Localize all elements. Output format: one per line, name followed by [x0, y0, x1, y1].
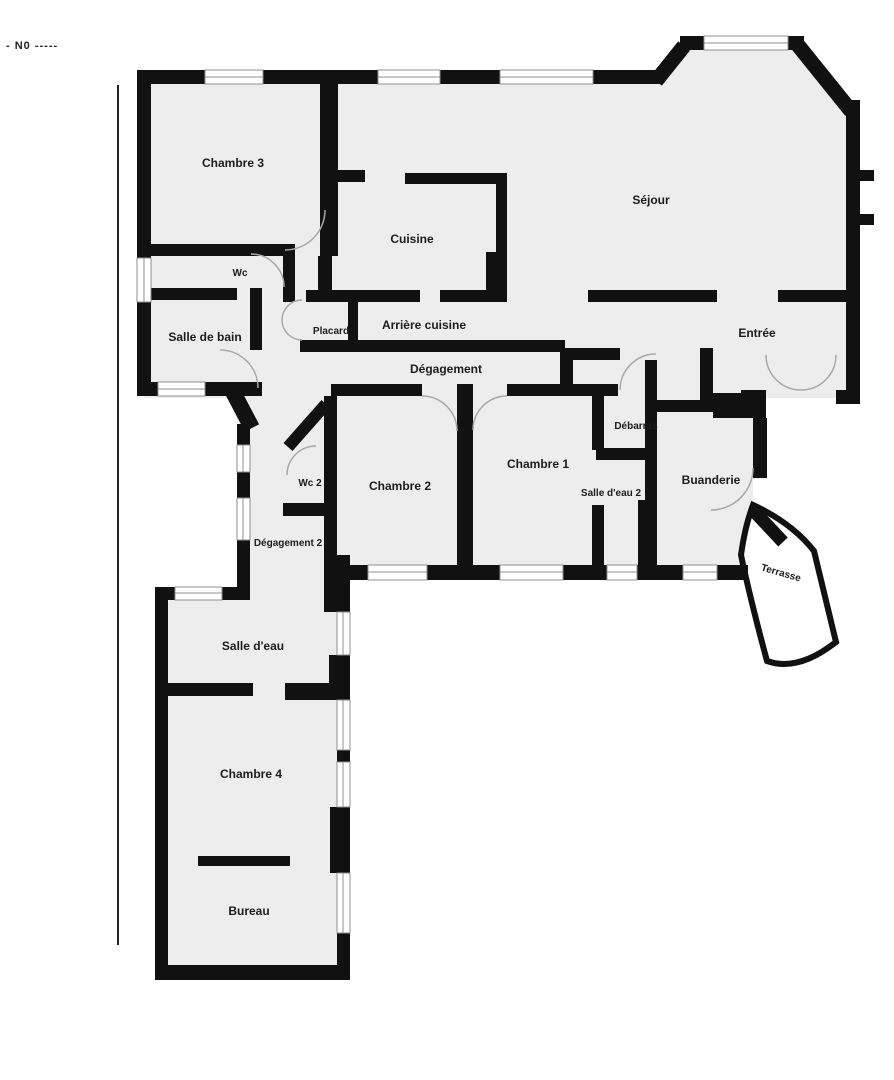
- window: [378, 70, 440, 84]
- wall-segment: [563, 565, 607, 580]
- wall-segment: [657, 400, 713, 412]
- window: [500, 70, 593, 84]
- wall-segment: [285, 683, 337, 700]
- wall-segment: [137, 70, 151, 396]
- wall-segment: [337, 933, 350, 980]
- wall-segment: [560, 348, 620, 360]
- wall-segment: [846, 214, 874, 225]
- wall-segment: [331, 384, 422, 396]
- room-label-entree: Entrée: [738, 326, 776, 340]
- window: [368, 565, 427, 580]
- window: [683, 565, 717, 580]
- room-label-arriere-cuisine: Arrière cuisine: [382, 318, 466, 332]
- wall-segment: [846, 100, 860, 396]
- wall-segment: [137, 382, 158, 396]
- window: [337, 700, 350, 750]
- window: [205, 70, 263, 84]
- wall-segment: [250, 288, 262, 350]
- window: [237, 445, 250, 472]
- wall-segment: [592, 384, 604, 450]
- room-label-sejour: Séjour: [632, 193, 670, 207]
- floorplan-svg: - N0 ----- Chambre 3 Wc Salle de bain Cu…: [0, 0, 894, 1080]
- room-label-wc-2: Wc 2: [298, 478, 322, 489]
- wall-segment: [338, 170, 365, 182]
- room-label-degagement-2: Dégagement 2: [254, 538, 323, 549]
- wall-segment: [846, 170, 874, 181]
- wall-segment: [237, 540, 250, 590]
- wall-segment: [713, 393, 766, 418]
- room-label-chambre-4: Chambre 4: [220, 767, 282, 781]
- room-label-salle-de-bain: Salle de bain: [168, 330, 241, 344]
- wall-segment: [427, 565, 500, 580]
- wall-segment: [263, 70, 378, 84]
- wall-segment: [592, 505, 604, 565]
- wall-segment: [638, 500, 657, 565]
- wall-segment: [155, 587, 175, 600]
- wall-segment: [283, 503, 337, 516]
- window: [337, 612, 350, 655]
- wall-segment: [588, 290, 717, 302]
- wall-segment: [405, 173, 507, 184]
- room-label-bureau: Bureau: [228, 904, 269, 918]
- room-label-chambre-2: Chambre 2: [369, 479, 431, 493]
- wall-segment: [151, 288, 237, 300]
- wall-segment: [306, 290, 355, 302]
- wall-segment: [348, 296, 358, 344]
- room-label-salle-d-eau: Salle d'eau: [222, 639, 284, 653]
- window: [337, 873, 350, 933]
- room-label-chambre-1: Chambre 1: [507, 457, 569, 471]
- wall-segment: [836, 390, 860, 404]
- wall-segment: [283, 244, 295, 302]
- wall-segment: [337, 750, 350, 762]
- wall-segment: [753, 418, 767, 478]
- wall-segment: [320, 84, 338, 256]
- room-label-buanderie: Buanderie: [682, 473, 741, 487]
- window: [704, 36, 788, 50]
- room-label-placard: Placard: [313, 326, 349, 337]
- wall-segment: [155, 965, 350, 980]
- wall-segment: [300, 340, 565, 352]
- wall-segment: [198, 856, 290, 866]
- north-marker: - N0 -----: [6, 40, 58, 52]
- wall-segment: [155, 587, 168, 978]
- floorplan-canvas: - N0 ----- Chambre 3 Wc Salle de bain Cu…: [0, 0, 894, 1080]
- wall-segment: [778, 290, 846, 302]
- window: [158, 382, 205, 396]
- wall-segment: [237, 472, 250, 498]
- room-label-chambre-3: Chambre 3: [202, 156, 264, 170]
- wall-segment: [680, 36, 706, 50]
- window: [607, 565, 637, 580]
- wall-segment: [355, 290, 420, 302]
- wall-segment: [440, 70, 500, 84]
- window: [175, 587, 222, 600]
- wall-segment: [324, 396, 337, 600]
- window: [500, 565, 563, 580]
- wall-segment: [717, 565, 748, 580]
- window: [237, 498, 250, 540]
- room-label-debarras: Débarras: [614, 421, 658, 432]
- room-label-cuisine: Cuisine: [390, 232, 434, 246]
- wall-segment: [637, 565, 683, 580]
- wall-segment: [457, 384, 473, 565]
- room-label-wc: Wc: [233, 268, 248, 279]
- wall-segment: [596, 448, 645, 460]
- room-label-degagement: Dégagement: [410, 362, 482, 376]
- wall-segment: [137, 244, 285, 256]
- window: [137, 258, 151, 302]
- wall-segment: [440, 290, 507, 302]
- wall-segment: [168, 683, 253, 696]
- wall-segment: [330, 807, 350, 873]
- wall-segment: [486, 252, 507, 290]
- terrasse-outline: [741, 505, 836, 664]
- room-label-salle-d-eau-2: Salle d'eau 2: [581, 488, 642, 499]
- window: [337, 762, 350, 807]
